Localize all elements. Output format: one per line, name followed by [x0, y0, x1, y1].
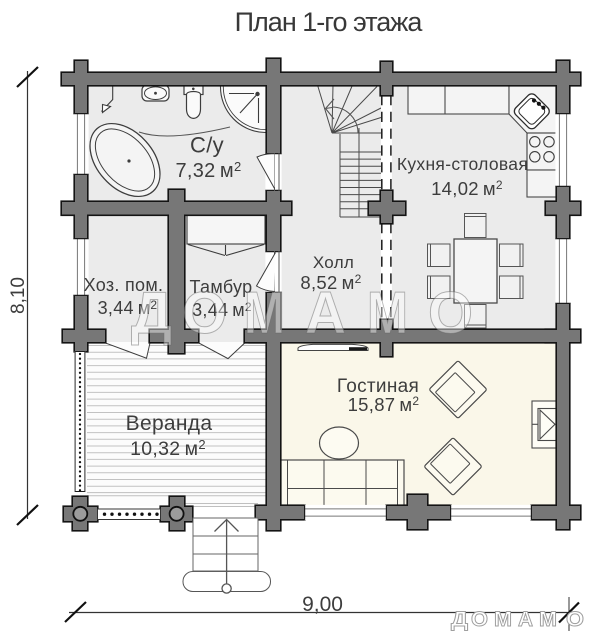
- svg-text:9,00: 9,00: [302, 593, 343, 616]
- svg-text:А: А: [518, 607, 533, 631]
- svg-text:С/у: С/у: [190, 133, 224, 158]
- svg-text:О: О: [471, 607, 488, 631]
- svg-text:Холл: Холл: [313, 253, 354, 272]
- svg-text:О: О: [428, 280, 473, 346]
- svg-text:М: М: [494, 607, 512, 631]
- svg-text:7,32 м2: 7,32 м2: [175, 159, 241, 182]
- svg-text:Д: Д: [451, 607, 468, 631]
- svg-text:14,02 м2: 14,02 м2: [431, 178, 503, 199]
- svg-text:Д: Д: [131, 280, 172, 346]
- svg-text:А: А: [305, 280, 346, 346]
- svg-text:10,32 м2: 10,32 м2: [130, 437, 206, 460]
- svg-text:М: М: [539, 607, 557, 631]
- svg-text:М: М: [367, 280, 408, 346]
- svg-text:О: О: [182, 280, 227, 346]
- svg-text:М: М: [244, 280, 285, 346]
- svg-text:Веранда: Веранда: [126, 412, 213, 435]
- svg-text:Кухня-столовая: Кухня-столовая: [397, 154, 528, 174]
- svg-text:15,87 м2: 15,87 м2: [348, 394, 420, 415]
- svg-text:8,10: 8,10: [8, 277, 29, 314]
- svg-text:О: О: [566, 607, 584, 631]
- svg-text:План 1-го этажа: План 1-го этажа: [235, 7, 424, 37]
